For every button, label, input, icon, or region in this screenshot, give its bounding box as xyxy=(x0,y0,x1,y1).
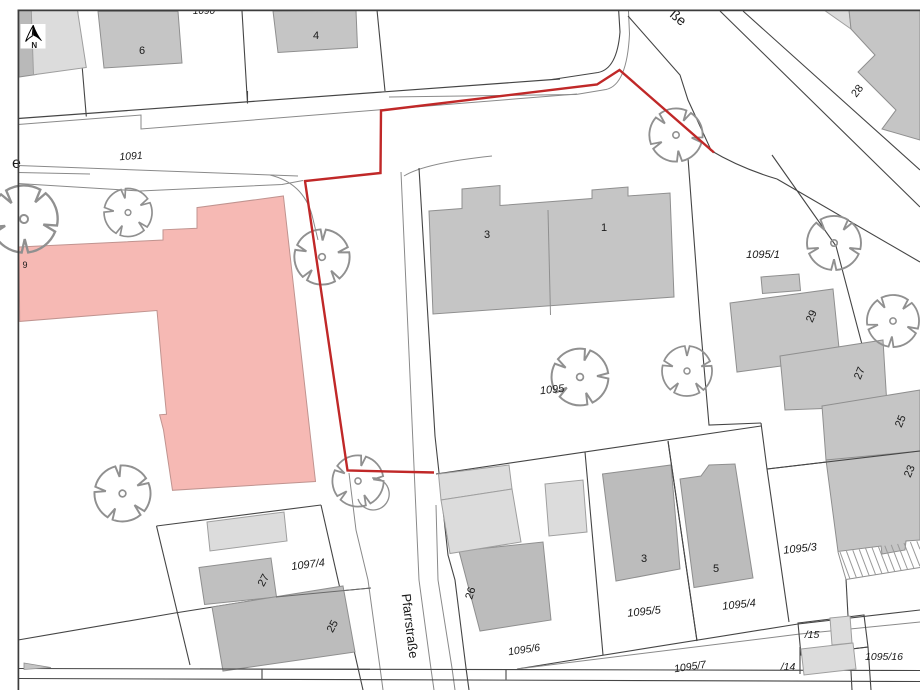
svg-text:/15: /15 xyxy=(804,629,820,641)
svg-text:1091: 1091 xyxy=(119,150,143,164)
svg-text:/14: /14 xyxy=(780,661,796,673)
svg-text:1095/16: 1095/16 xyxy=(865,651,903,663)
svg-text:5: 5 xyxy=(713,563,719,575)
svg-text:N: N xyxy=(31,41,37,50)
svg-text:1: 1 xyxy=(601,222,607,234)
svg-text:1095/1: 1095/1 xyxy=(746,249,780,261)
svg-text:e: e xyxy=(12,155,21,172)
svg-text:3: 3 xyxy=(641,553,647,565)
svg-text:4: 4 xyxy=(313,30,319,42)
svg-text:9: 9 xyxy=(22,260,27,270)
svg-text:6: 6 xyxy=(139,45,145,57)
svg-text:3: 3 xyxy=(484,229,490,241)
